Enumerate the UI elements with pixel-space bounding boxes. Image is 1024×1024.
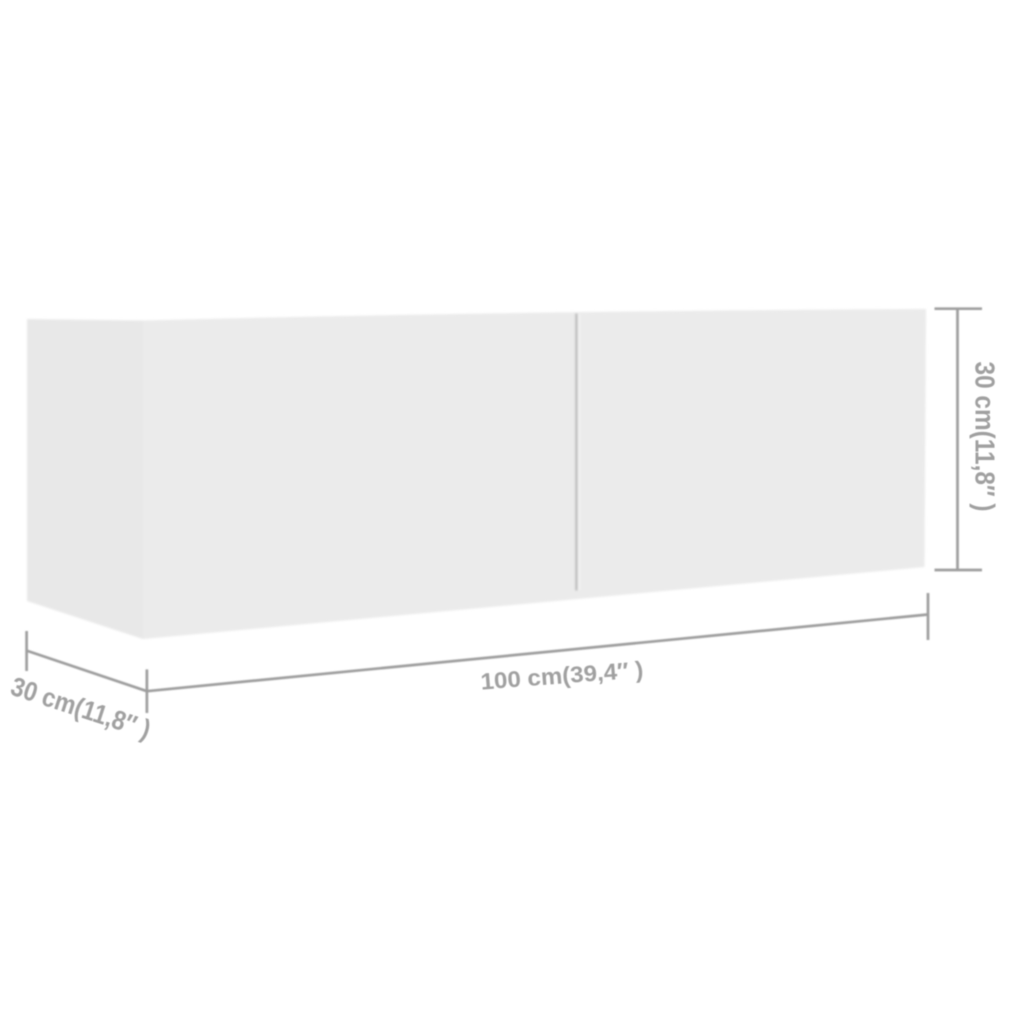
svg-text:30 cm(11,8″ ): 30 cm(11,8″ ): [970, 362, 1001, 512]
